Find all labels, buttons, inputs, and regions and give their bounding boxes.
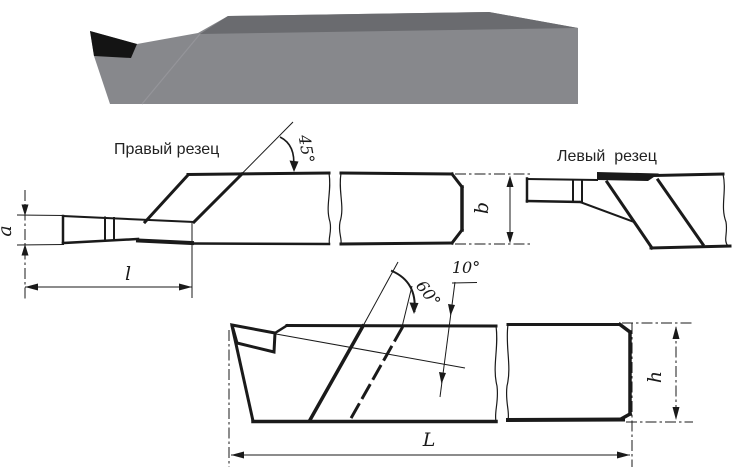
h-arrowhead-top <box>673 326 680 339</box>
angle-10-arrowhead-lower <box>439 372 446 384</box>
angle-10-reference-tick <box>452 283 477 284</box>
top-edge-section1 <box>287 326 496 327</box>
angle-60-arrowhead <box>410 303 419 315</box>
l-arrowhead-left <box>25 284 38 291</box>
angle-10-arrowhead-upper <box>448 304 455 316</box>
dimension-L: L <box>229 323 632 467</box>
rake-reference-line <box>276 334 465 368</box>
photo-3d-tool <box>90 12 578 104</box>
dimension-b: b <box>455 174 531 244</box>
L-arrowhead-right <box>617 452 630 459</box>
body-bottom-edge <box>651 246 730 248</box>
angle-45-annotation: 45° <box>208 122 318 208</box>
h-arrowhead-bottom <box>673 407 680 420</box>
b-arrowhead-top <box>507 176 514 188</box>
tip-insert-band <box>597 172 659 181</box>
body-bottom-edge-section1 <box>192 244 329 245</box>
insert-end-line-dashed <box>350 328 402 420</box>
L-dimension-label: L <box>422 429 436 451</box>
body-corner-chamfer-bottom <box>452 230 462 243</box>
front-clearance-left-edge <box>232 326 253 421</box>
break-line-left <box>328 173 330 244</box>
break-line-left <box>495 326 497 422</box>
body-top-edge <box>655 174 723 176</box>
nose-top-edge <box>63 216 193 222</box>
body-bottom-edge-section2 <box>341 243 452 244</box>
l-arrowhead-right <box>179 284 192 291</box>
L-arrowhead-left <box>231 452 244 459</box>
head-parallelogram-right-edge <box>658 180 703 245</box>
dashed-line-extension-thin <box>402 286 412 327</box>
head-relief-edge <box>138 241 192 244</box>
left-cutter-caption: Левый резец <box>557 148 657 165</box>
break-line-right <box>723 174 728 246</box>
a-dimension-label: a <box>0 225 16 236</box>
break-line-right <box>507 325 509 421</box>
head-parallelogram-left-edge <box>145 175 188 222</box>
bottom-edge-section2 <box>508 420 623 421</box>
dimension-a: a <box>0 190 64 300</box>
a-extension-line-top <box>17 215 64 216</box>
b-arrowhead-bottom <box>507 232 514 244</box>
angle-10-label: 10° <box>452 258 480 277</box>
angle-60-annotation: 60° <box>392 271 445 314</box>
dimension-h: h <box>622 323 693 422</box>
nose-bottom-edge <box>63 239 138 243</box>
right-cutter-caption: Правый резец <box>114 141 219 158</box>
break-line-right <box>339 173 341 244</box>
a-arrowhead-bottom <box>22 244 29 256</box>
drawing-canvas: Правый резец 45° b Левый резец <box>0 0 739 473</box>
angle-10-annotation: 10° <box>439 258 480 397</box>
nose-top-edge <box>527 179 597 180</box>
angle-45-leader-line <box>208 122 293 208</box>
tip-insert-outline <box>232 325 275 352</box>
angle-45-label: 45° <box>294 132 318 164</box>
dimension-l: l <box>25 223 192 298</box>
l-dimension-label: l <box>125 263 131 285</box>
body-top-edge-section1 <box>188 173 329 175</box>
insert-braze-line-solid <box>310 326 363 420</box>
technical-drawing-svg: Правый резец 45° b Левый резец <box>0 0 739 473</box>
h-dimension-label: h <box>644 371 666 383</box>
b-dimension-label: b <box>471 202 493 214</box>
tool-3d-carbide-tip <box>90 31 137 58</box>
a-arrowhead-top <box>22 205 29 217</box>
body-corner-chamfer-top <box>452 174 462 187</box>
tip-step-chamfer <box>275 326 287 334</box>
plan-view-right-cutter: Правый резец <box>63 141 462 244</box>
body-top-edge-section2 <box>341 173 452 174</box>
plan-view-left-cutter: Левый резец <box>527 148 730 248</box>
angle-45-arrowhead <box>290 161 299 173</box>
a-extension-line-bottom <box>17 245 64 246</box>
